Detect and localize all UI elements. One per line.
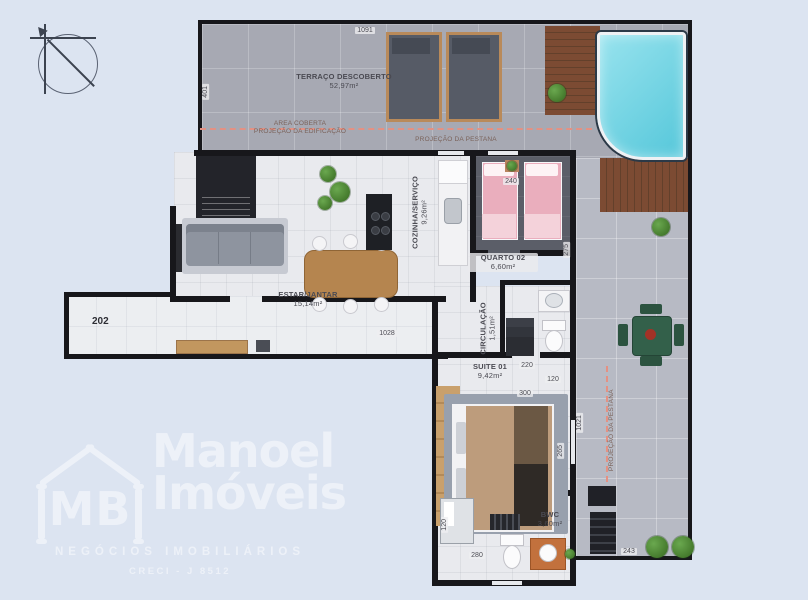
bed-blanket — [482, 214, 516, 238]
room-label-circulacao: CIRCULAÇÃO1,51m² — [479, 286, 498, 370]
annotation-pestana-right: PROJEÇÃO DA PESTANA — [608, 370, 616, 490]
pool-deck-bottom — [600, 158, 688, 212]
wall-suite-north-b — [540, 352, 576, 358]
window-bedroom2 — [488, 151, 518, 155]
wall-hall-north-left — [64, 292, 172, 297]
terrace-plant — [548, 84, 566, 102]
dim-suite-width: 300 — [510, 390, 540, 398]
annotation-area-coberta: AREA COBERTAPROJEÇÃO DA EDIFICAÇÃO — [238, 120, 362, 137]
dim-quarto-depth: 275 — [563, 235, 571, 265]
patio-chair — [674, 324, 684, 346]
indoor-plant — [318, 196, 332, 210]
wall-top — [198, 20, 692, 24]
logo-house-icon: MB — [36, 436, 146, 551]
wall-bottom-right — [576, 556, 692, 560]
floor-plan-canvas: TERRAÇO DESCOBERTO52,97m² AREA COBERTAPR… — [0, 0, 808, 600]
wall-suite-north-a — [432, 352, 512, 358]
agency-logo: MB Manoel Imóveis NEGÓCIOS IMOBILIÁRIOS … — [30, 420, 340, 590]
dining-chair — [343, 234, 358, 249]
wall-hall-south — [64, 354, 448, 359]
patio-chair — [618, 324, 628, 346]
window-bwc — [492, 581, 522, 585]
logo-subtitle: NEGÓCIOS IMOBILIÁRIOS — [30, 546, 330, 558]
wall-hall-west — [64, 292, 69, 358]
sofa — [186, 224, 284, 266]
bwc-sink — [539, 544, 557, 562]
stove-burner — [381, 226, 390, 235]
grill-unit — [590, 512, 616, 554]
bed-pillow — [526, 164, 558, 176]
dim-quarto-bed: 240 — [496, 178, 526, 186]
door-terrace — [438, 151, 464, 155]
dining-chair — [312, 236, 327, 251]
sofa-cushion-line — [218, 232, 219, 264]
dining-chair — [374, 297, 389, 312]
lounge-chair-headrest — [392, 38, 430, 54]
annotation-pestana-top: PROJEÇÃO DA PESTANA — [398, 136, 514, 144]
towel-rack — [490, 514, 520, 530]
dim-patio-width: 243 — [614, 548, 644, 556]
wall-east-main — [570, 250, 576, 586]
dim-east-height: 1021 — [576, 405, 584, 441]
wc-sink — [545, 293, 563, 308]
wc-toilet-bowl — [545, 330, 563, 352]
dim-bwc-depth: 120 — [441, 510, 449, 540]
tv-console — [176, 224, 182, 272]
wall-kitchen-east — [470, 156, 476, 302]
room-label-bwc: BWC3,60m² — [520, 510, 580, 529]
logo-brand-text: Manoel Imóveis — [152, 430, 352, 515]
dim-terrace-left: 401 — [202, 74, 210, 110]
stair-treads — [202, 192, 250, 220]
dim-wc-width: 120 — [540, 376, 566, 384]
room-label-estar: ESTAR/JANTAR15,14m² — [258, 290, 358, 309]
hall-console — [176, 340, 248, 354]
patio-bush — [646, 536, 668, 558]
unit-number: 202 — [92, 316, 109, 327]
room-label-quarto02: QUARTO 026,60m² — [468, 253, 538, 272]
north-compass-icon — [28, 22, 108, 102]
stove-burner — [371, 226, 380, 235]
bed-duvet-patch — [514, 406, 548, 464]
wall-bedroom2-east — [570, 150, 576, 256]
window-suite — [571, 420, 575, 464]
wall-circ-east — [500, 284, 505, 358]
bwc-plant — [565, 549, 575, 559]
sofa-cushion-line — [250, 232, 251, 264]
wall-right — [688, 20, 692, 560]
fridge — [438, 160, 468, 184]
logo-initials: MB — [45, 482, 135, 536]
patio-chair — [640, 304, 662, 314]
stove-burner — [381, 212, 390, 221]
wall-living-hall-a — [170, 296, 230, 302]
dim-bwc-width: 280 — [462, 552, 492, 560]
kitchen-sink — [444, 198, 462, 224]
nightstand-plant — [507, 161, 517, 171]
dim-corridor-width: 1028 — [368, 330, 406, 338]
logo-license: CRECI - J 8512 — [30, 566, 330, 577]
swimming-pool — [597, 32, 686, 160]
patio-chair — [640, 356, 662, 366]
bed-pillow — [456, 468, 466, 500]
bed-pillow — [456, 422, 466, 454]
kitchen-counter-dark — [366, 194, 392, 250]
indoor-plant — [320, 166, 336, 182]
patio-table-pot — [645, 329, 656, 340]
pool-deck-left — [545, 26, 600, 115]
wall-wc-north — [500, 280, 576, 285]
room-label-cozinha: COZINHA/SERVIÇO9,26m² — [411, 170, 430, 254]
hall-decor — [256, 340, 270, 352]
dim-suite-depth: 265 — [557, 436, 565, 466]
stove-burner — [371, 212, 380, 221]
bed-blanket — [524, 214, 560, 238]
laundry-shelves — [506, 318, 534, 356]
lounge-chair-headrest — [452, 38, 490, 54]
indoor-plant — [330, 182, 350, 202]
patio-plant — [652, 218, 670, 236]
room-label-terraco: TERRAÇO DESCOBERTO52,97m² — [274, 72, 414, 91]
patio-bush — [672, 536, 694, 558]
bwc-toilet-bowl — [503, 545, 521, 569]
dim-terrace-width: 1091 — [345, 27, 385, 35]
dim-circ-depth: 220 — [514, 362, 540, 370]
